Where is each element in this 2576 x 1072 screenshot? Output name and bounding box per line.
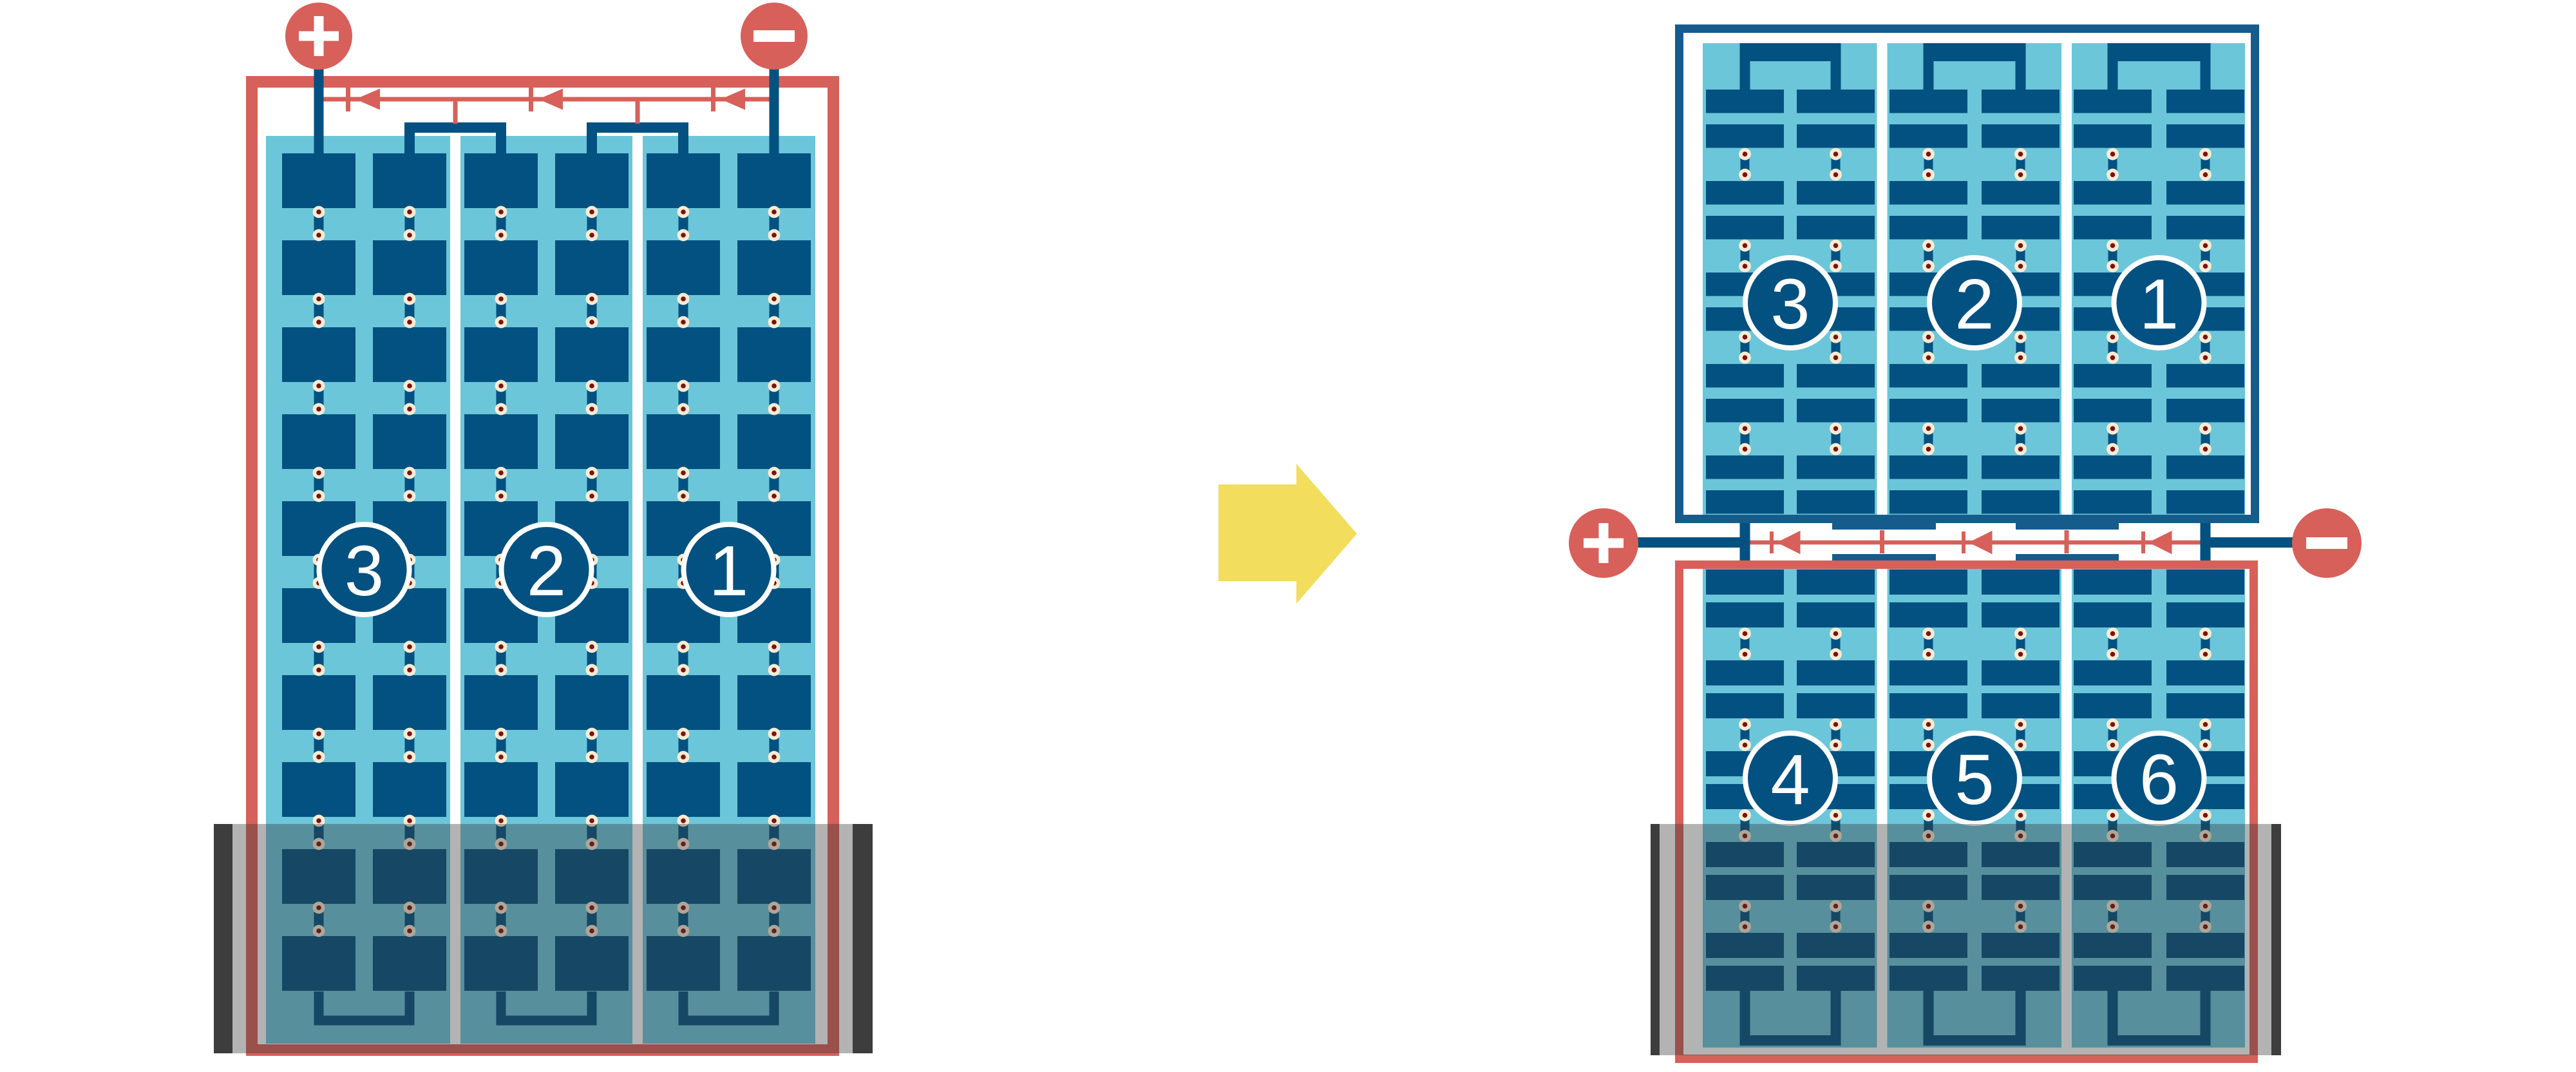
svg-text:3: 3: [1770, 265, 1810, 344]
svg-text:3: 3: [345, 531, 384, 611]
svg-text:2: 2: [527, 531, 566, 611]
svg-text:5: 5: [1955, 740, 1994, 819]
svg-text:1: 1: [709, 531, 748, 611]
svg-text:4: 4: [1770, 740, 1810, 819]
svg-text:1: 1: [2139, 265, 2179, 344]
svg-text:2: 2: [1955, 265, 1994, 344]
svg-text:6: 6: [2139, 740, 2179, 819]
